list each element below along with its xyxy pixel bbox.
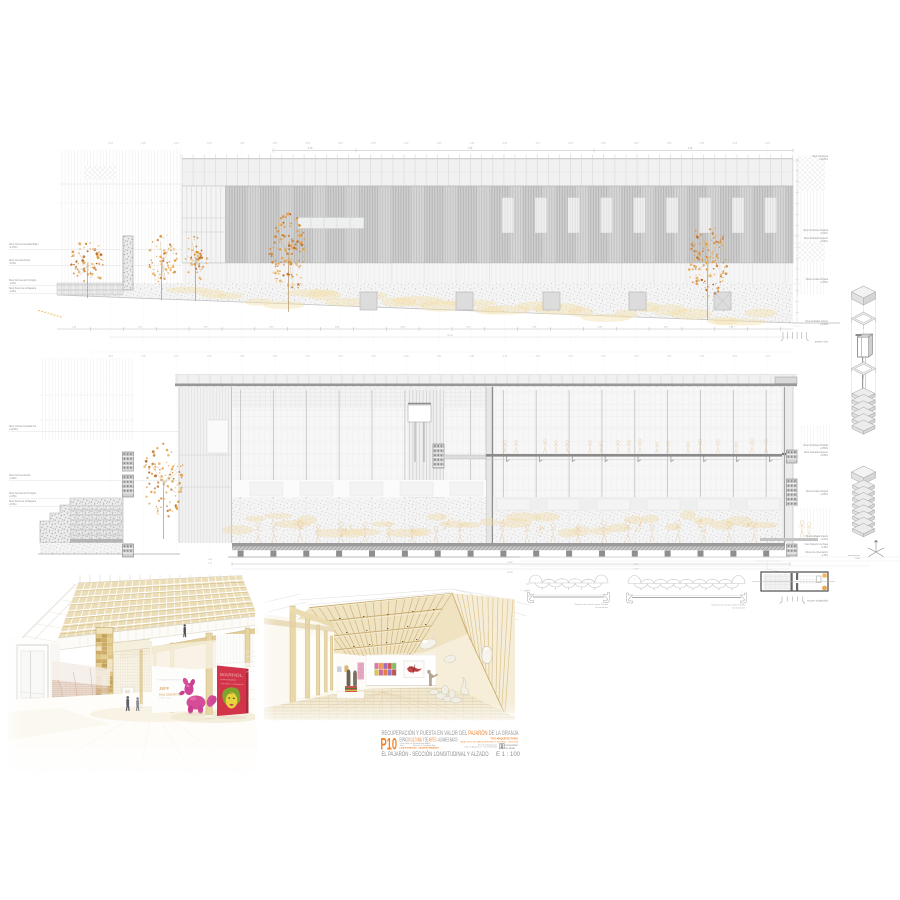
svg-text:Nivel Cornisa Original: Nivel Cornisa Original: [806, 490, 829, 493]
svg-text:-0.03: -0.03: [371, 143, 377, 145]
svg-text:Nivel Cornisa de Hormigón: Nivel Cornisa de Hormigón: [9, 492, 37, 495]
svg-text:REAL SITIO DE SAN ILDEFONSO Y: REAL SITIO DE SAN ILDEFONSO Y RIOFRÍO - …: [461, 741, 519, 744]
svg-text:de montantes: de montantes: [732, 607, 745, 610]
svg-text:-0.02: -0.02: [141, 356, 147, 358]
svg-text:-0.02: -0.02: [207, 356, 213, 358]
svg-text:-1.80m: -1.80m: [9, 291, 16, 293]
svg-text:Nivel Pavim de la Máquina: Nivel Pavim de la Máquina: [9, 501, 37, 503]
svg-text:Esquema de armado según Planti: Esquema de armado según Plantilla: [712, 604, 746, 607]
svg-text:+2.85m: +2.85m: [820, 494, 828, 496]
svg-text:-0.02: -0.02: [469, 143, 475, 145]
svg-text:Nivel Cornisa Inferior: Nivel Cornisa Inferior: [9, 259, 31, 262]
svg-text:WARHOL: WARHOL: [219, 672, 243, 678]
svg-text:-0.45m: -0.45m: [821, 547, 828, 549]
svg-text:-0.02: -0.02: [240, 143, 246, 145]
svg-text:+1.80m: +1.80m: [9, 478, 17, 480]
svg-text:Nivel Fachada Superior: Nivel Fachada Superior: [804, 237, 828, 240]
svg-text:-0.04: -0.04: [437, 143, 443, 145]
svg-text:+0.00m: +0.00m: [820, 539, 828, 541]
svg-text:Nivel Pavim de la Máquina: Nivel Pavim de la Máquina: [9, 288, 37, 290]
svg-text:axonometría: axonometría: [848, 554, 861, 557]
svg-text:-0.02: -0.02: [108, 143, 114, 145]
svg-text:+0.00m: +0.00m: [820, 324, 828, 326]
svg-text:alzado norte: alzado norte: [815, 341, 829, 344]
svg-text:-0.02: -0.02: [765, 356, 771, 358]
svg-text:4.16: 4.16: [688, 147, 693, 150]
svg-text:LAIA RODRÍGUEZ - VALERIA FERNA: LAIA RODRÍGUEZ - VALERIA FERNANDO: [400, 746, 440, 749]
svg-text:-0.02: -0.02: [502, 356, 508, 358]
svg-text:Nivel Acabado Interior: Nivel Acabado Interior: [806, 320, 829, 323]
svg-text:-0.02: -0.02: [634, 143, 640, 145]
svg-text:-0.02: -0.02: [174, 143, 180, 145]
svg-text:+0.80m: +0.80m: [9, 504, 17, 506]
svg-text:-0.03: -0.03: [141, 143, 147, 145]
svg-text:-0.02: -0.02: [371, 356, 377, 358]
svg-text:-0.02: -0.02: [765, 143, 771, 145]
svg-text:-0.02: -0.02: [240, 356, 246, 358]
svg-text:EL PAJARÓN - SECCIÓN LONGITUDI: EL PAJARÓN - SECCIÓN LONGITUDINAL Y ALZA…: [382, 751, 489, 758]
svg-text:+5.80m: +5.80m: [820, 455, 828, 457]
svg-text:de Alcalá: de Alcalá: [505, 747, 515, 750]
svg-text:-0.02: -0.02: [732, 356, 738, 358]
svg-text:-0.02: -0.02: [272, 356, 278, 358]
svg-text:4.16: 4.16: [308, 147, 313, 150]
svg-text:-0.475m: -0.475m: [9, 247, 18, 249]
svg-text:-0.02: -0.02: [437, 356, 443, 358]
svg-text:+5.80m: +5.80m: [820, 241, 828, 243]
svg-text:Nivel Cumbrera: Nivel Cumbrera: [812, 155, 829, 158]
svg-text:Nivel Cumbrera Original: Nivel Cumbrera Original: [803, 229, 828, 232]
svg-text:-0.02: -0.02: [699, 143, 705, 145]
svg-text:+2.85m: +2.85m: [820, 282, 828, 284]
svg-text:de montantes: de montantes: [595, 606, 608, 609]
svg-text:Nivel Cornisa Original: Nivel Cornisa Original: [806, 278, 829, 281]
svg-text:Nivel Fachada Superior: Nivel Fachada Superior: [804, 451, 828, 454]
svg-text:-0.02: -0.02: [601, 356, 607, 358]
svg-text:52.78: 52.78: [507, 572, 513, 574]
svg-text:Muros de cimentación: Muros de cimentación: [806, 551, 829, 554]
svg-text:Cara Superior de Zapa: Cara Superior de Zapa: [805, 543, 829, 546]
svg-text:+10.80m: +10.80m: [9, 429, 18, 431]
svg-text:-0.02: -0.02: [568, 356, 574, 358]
svg-text:RECUPERACIÓN Y PUESTA EN VALOR: RECUPERACIÓN Y PUESTA EN VALOR DEL PAJAR…: [382, 728, 519, 737]
svg-text:Nivel Cornisa Inferior: Nivel Cornisa Inferior: [9, 474, 31, 477]
svg-text:-0.02: -0.02: [108, 356, 114, 358]
svg-text:-0.02: -0.02: [634, 356, 640, 358]
svg-text:E 1 : 100: E 1 : 100: [496, 751, 521, 758]
svg-text:-0.02: -0.02: [699, 356, 705, 358]
svg-text:47.67: 47.67: [633, 569, 639, 571]
svg-text:+0.85m: +0.85m: [9, 496, 17, 498]
svg-text:TFG ARQUITECTURA: TFG ARQUITECTURA: [490, 737, 518, 741]
svg-text:Universidad: Universidad: [505, 744, 518, 747]
svg-text:Nivel Cornisa Techado Bajón: Nivel Cornisa Techado Bajón: [9, 243, 39, 246]
svg-text:Nivel Cornisa Techada Sur: Nivel Cornisa Techada Sur: [9, 425, 36, 428]
svg-text:+6.50m: +6.50m: [820, 233, 828, 235]
svg-text:-0.03: -0.03: [502, 143, 508, 145]
svg-text:-0.02: -0.02: [404, 143, 410, 145]
svg-text:-0.02: -0.02: [305, 143, 311, 145]
svg-text:-0.02: -0.02: [535, 143, 541, 145]
svg-text:-0.80m: -0.80m: [9, 263, 16, 265]
svg-text:+10.80m: +10.80m: [819, 159, 828, 161]
svg-text:-0.03: -0.03: [732, 143, 738, 145]
svg-text:JEFF: JEFF: [159, 686, 170, 691]
svg-text:-0.02: -0.02: [338, 143, 344, 145]
svg-text:Esquema de armado según Planti: Esquema de armado según Plantilla: [575, 603, 609, 606]
svg-text:41.22: 41.22: [507, 562, 513, 564]
svg-text:23.89: 23.89: [633, 564, 639, 566]
svg-text:1:200: 1:200: [855, 558, 861, 560]
svg-text:-0.02: -0.02: [535, 356, 541, 358]
svg-text:-0.02: -0.02: [338, 356, 344, 358]
svg-text:-0.02: -0.02: [174, 356, 180, 358]
svg-text:-0.04: -0.04: [667, 143, 673, 145]
svg-text:Dpto. de Arquitectura · Curso: Dpto. de Arquitectura · Curso 2020-2021: [465, 746, 497, 749]
svg-text:-0.02: -0.02: [404, 356, 410, 358]
svg-text:Nivel Acabado Interior: Nivel Acabado Interior: [806, 535, 829, 538]
svg-text:BALLOON RETR.: BALLOON RETR.: [159, 693, 181, 697]
svg-text:EL PAJARON TEMPORADA 1: EL PAJARON TEMPORADA 1: [158, 679, 181, 682]
svg-text:-0.02: -0.02: [568, 143, 574, 145]
svg-text:-0.03: -0.03: [601, 143, 607, 145]
svg-text:+6.50m: +6.50m: [820, 448, 828, 450]
svg-text:-0.02: -0.02: [469, 356, 475, 358]
svg-text:7.24: 7.24: [468, 147, 473, 150]
svg-text:-0.03: -0.03: [272, 143, 278, 145]
svg-text:4 SEPT - 31 DIC: 4 SEPT - 31 DIC: [159, 698, 172, 700]
svg-text:-1.50m: -1.50m: [9, 283, 16, 285]
svg-text:Nivel Cumbrera Original: Nivel Cumbrera Original: [803, 444, 828, 447]
svg-text:sección longitudinal: sección longitudinal: [807, 600, 828, 603]
svg-text:Nivel Cornisa de Hormigón: Nivel Cornisa de Hormigón: [9, 279, 37, 282]
svg-text:-0.04: -0.04: [207, 143, 213, 145]
svg-text:52.78: 52.78: [447, 335, 453, 337]
svg-text:-0.02: -0.02: [667, 356, 673, 358]
svg-text:-0.02: -0.02: [305, 356, 311, 358]
